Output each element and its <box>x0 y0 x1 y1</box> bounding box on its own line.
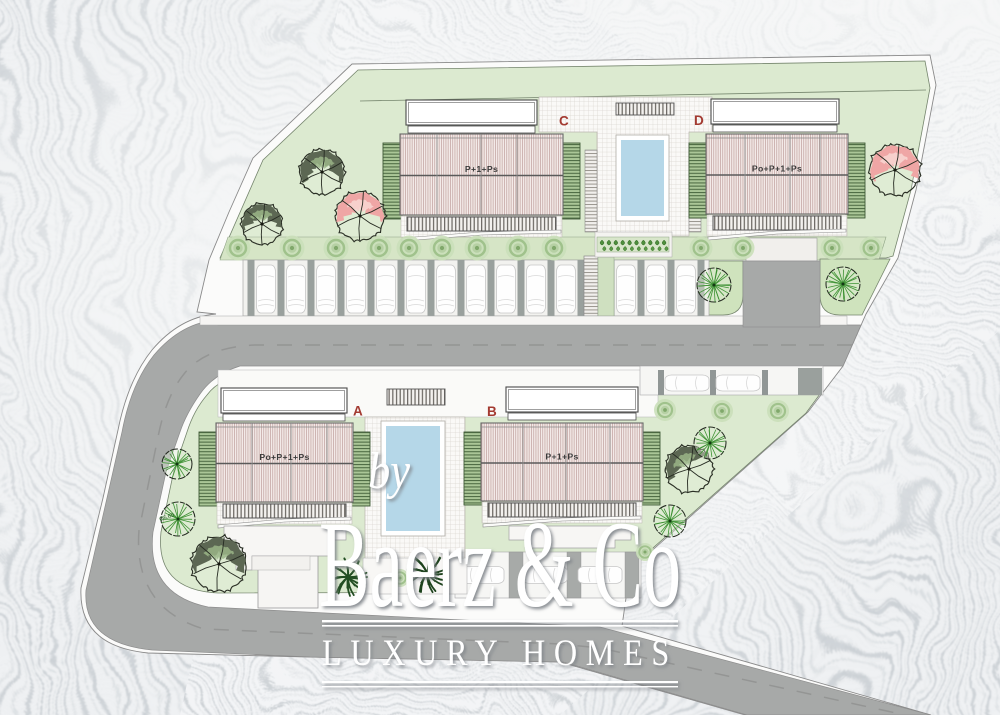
svg-text:by: by <box>368 443 411 500</box>
svg-text:A: A <box>353 404 363 419</box>
svg-text:B: B <box>487 404 497 419</box>
svg-text:P+1+Ps: P+1+Ps <box>465 164 498 174</box>
svg-text:Baerz & Co: Baerz & Co <box>319 496 681 633</box>
svg-text:Po+P+1+Ps: Po+P+1+Ps <box>752 164 802 174</box>
svg-text:LUXURY HOMES: LUXURY HOMES <box>322 633 678 674</box>
svg-text:Po+P+1+Ps: Po+P+1+Ps <box>259 452 309 462</box>
svg-text:P+1+Ps: P+1+Ps <box>545 452 578 462</box>
svg-text:C: C <box>559 114 569 129</box>
svg-text:D: D <box>694 113 704 128</box>
